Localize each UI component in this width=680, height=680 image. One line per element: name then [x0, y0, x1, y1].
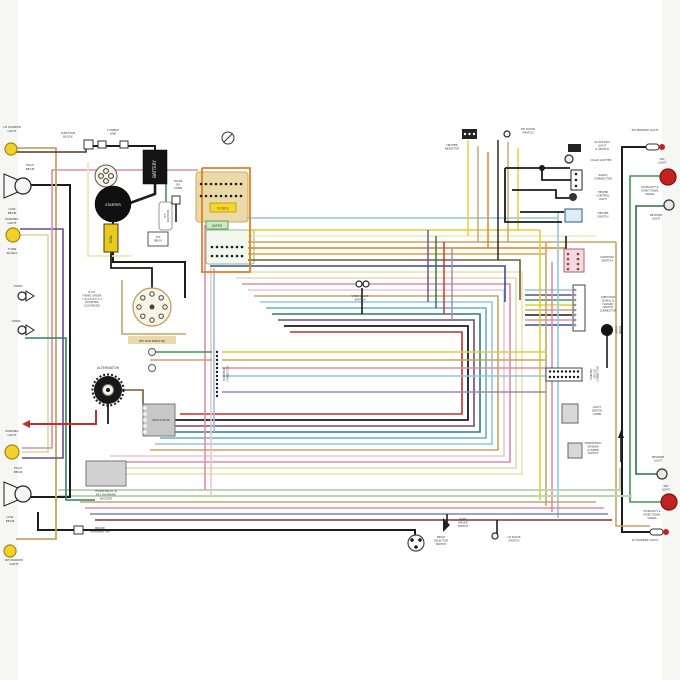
- printed-circuit-pins-1: [577, 370, 579, 372]
- wiper-fuse-row-1: [216, 246, 219, 249]
- stop-light-switch-pin-2: [363, 281, 369, 287]
- printed-circuit-label: PRINTEDCIRCUITCONNECTOR: [589, 366, 600, 382]
- bulkhead-connector-pins: [216, 359, 218, 361]
- wiper-fuse-row-1: [241, 246, 244, 249]
- wire-nest-purple: [170, 320, 474, 426]
- glove-box-light-symbol: [568, 144, 581, 152]
- wiper-fuse-row-1: [221, 246, 224, 249]
- parking-lamp-top-bulb: [6, 228, 20, 242]
- stoplight-bottom-label: STOPLIGHT &DIRECTIONALSIGNAL: [643, 509, 661, 520]
- rh-door-switch-symbol: [504, 131, 510, 137]
- fuse-row-1: [205, 183, 208, 186]
- horn-2-bell: [26, 325, 34, 335]
- fuse-row-1: [210, 183, 213, 186]
- firing-order-label: 8 CYLFIRING ORDER1-8-4-3-6-5-7-2(COUNTER…: [82, 290, 102, 308]
- fuse-row-2: [205, 195, 208, 198]
- wiper-fuse-row-2: [221, 255, 224, 258]
- oil-sender: [149, 365, 156, 372]
- turn-signal-top-label: TURNSIGNAL: [6, 247, 17, 255]
- printed-circuit-pins-2: [577, 376, 579, 378]
- bulkhead-connector-pins: [216, 395, 218, 397]
- wire-horn-teal: [25, 338, 95, 500]
- wiper-fuse-row-1: [231, 246, 234, 249]
- printed-circuit-pins-1: [569, 370, 571, 372]
- ignition-pins-1: [567, 258, 570, 261]
- beam-selector-label: BEAMSELECTORSWITCH: [434, 535, 448, 546]
- cigar-lighter-symbol: [565, 155, 573, 163]
- wire-top-orange: [248, 248, 565, 252]
- printed-circuit-pins-1: [573, 370, 575, 372]
- dome-light-symbol: [601, 324, 613, 336]
- fuse-row-1: [230, 183, 233, 186]
- fuse-row-1: [220, 183, 223, 186]
- hei-distributor-label: HEI DISTRIBUTOR: [139, 339, 165, 343]
- photo-edge-left: [0, 0, 18, 680]
- rh-marker-light-capsule: [646, 144, 659, 150]
- fuse-row-1: [200, 183, 203, 186]
- fuses-label: FUSES: [217, 207, 229, 211]
- printed-circuit-pins-2: [549, 376, 551, 378]
- lh-marker-light-capsule: [650, 529, 663, 535]
- wire-alt-regulator-brown: [121, 390, 143, 405]
- dome-light-label: DOMELIGHT: [615, 326, 622, 334]
- regulator-scallops: [143, 412, 147, 416]
- tail-light-top: [660, 169, 676, 185]
- printed-circuit-pins-2: [561, 376, 563, 378]
- bulkhead-connector-pins: [216, 363, 218, 365]
- low-beam-top-label: LOWBEAM: [8, 207, 17, 215]
- wiper-fuse-row-2: [216, 255, 219, 258]
- ignition-pins-1: [567, 253, 570, 256]
- radio-connector-pins: [575, 173, 578, 176]
- bulkhead-connector-pins: [216, 375, 218, 377]
- fuse-row-1: [240, 183, 243, 186]
- fuse-row-1: [235, 183, 238, 186]
- glove-box-label: GLOVE BOXLIGHT& SWITCH: [594, 140, 610, 151]
- horn-1-symbol: [18, 292, 26, 300]
- photo-edge-right: [662, 0, 680, 680]
- horn-2-symbol: [18, 326, 26, 334]
- headlamp-top-lens: [15, 178, 31, 194]
- heater-switch-symbol: [565, 209, 582, 222]
- wiper-fuse-row-2: [226, 255, 229, 258]
- horn-1-label: HORN: [14, 284, 23, 288]
- regulator-label: REGULATOR: [152, 418, 169, 422]
- wire-bottom-palegreen-1: [58, 468, 620, 490]
- lh-door-switch-symbol: [492, 533, 498, 539]
- heater-switch-label: HEATERSWITCH: [598, 211, 609, 219]
- fuse-row-2: [225, 195, 228, 198]
- printed-circuit-pins-1: [553, 370, 555, 372]
- wiper-switch-connector: [568, 443, 582, 458]
- wire-left-cream: [20, 235, 48, 452]
- ignition-pins-1: [567, 268, 570, 271]
- tail-light-bottom: [661, 494, 677, 510]
- rh-marker-lamp-bulb: [4, 545, 16, 557]
- wiper-fuse-row-2: [236, 255, 239, 258]
- heater-resistor-pins: [473, 133, 475, 135]
- reverse-light-bottom: [657, 469, 667, 479]
- beam-selector-pins: [410, 538, 414, 542]
- wire-left-tan: [16, 148, 56, 539]
- stop-light-switch-pin-1: [356, 281, 362, 287]
- ignition-pins-2: [577, 268, 580, 271]
- horn-relay-label: HORN RELAY &KEY WARNINGBUZZER: [95, 489, 117, 500]
- distributor-center: [150, 305, 155, 310]
- high-beam-top-label: HIGHBEAM: [26, 163, 35, 171]
- battery-label: BATTERY: [152, 160, 157, 178]
- antenna-arrowhead: [618, 430, 624, 438]
- horn-relay: [86, 461, 126, 486]
- fuse-row-2: [240, 195, 243, 198]
- wiper-fuse-row-2: [241, 255, 244, 258]
- alternator-label: ALTERNATOR: [97, 366, 120, 370]
- park-brake-label: PARKBRAKESWITCH: [458, 517, 469, 528]
- heater-resistor-pins: [468, 133, 470, 135]
- starter-label: STARTER: [105, 203, 121, 207]
- heater-control-light-symbol: [569, 193, 577, 201]
- printed-circuit-pins-2: [573, 376, 575, 378]
- lh-marker-bottom-label: LH MARKER LIGHT: [632, 538, 659, 542]
- fuse-row-2: [220, 195, 223, 198]
- brake-warning-label: BRAKEWARNING SW: [90, 526, 110, 534]
- regulator-scallops: [143, 430, 147, 434]
- wire-marker-brown: [16, 146, 86, 152]
- ignition-pins-1: [567, 263, 570, 266]
- printed-circuit-connector: [546, 368, 582, 381]
- alternator-red-arrowhead: [22, 420, 30, 428]
- printed-circuit-pins-1: [557, 370, 559, 372]
- rh-marker-light-label: RH MARKER LIGHT: [632, 128, 659, 132]
- rh-marker-light-lens: [659, 144, 665, 150]
- fusible-link-label: FUSIBLELINK: [107, 128, 119, 136]
- regulator-scallops: [143, 424, 147, 428]
- wire-heaterlight-black: [512, 190, 571, 198]
- wiper-fuse-row-2: [231, 255, 234, 258]
- headlamp-bottom-lens: [15, 486, 31, 502]
- beam-selector-pins: [418, 538, 422, 542]
- high-beam-bottom-label: HIGHBEAM: [14, 466, 23, 474]
- coil-label: COIL: [109, 235, 113, 243]
- printed-circuit-pins-2: [557, 376, 559, 378]
- direction-signal-pins: [574, 289, 577, 292]
- harness-junction-dot: [539, 165, 545, 171]
- heater-resistor-pins: [464, 133, 466, 135]
- fuse-row-2: [215, 195, 218, 198]
- junction-block: [84, 140, 93, 149]
- direction-signal-pins: [574, 309, 577, 312]
- fuse-row-2: [210, 195, 213, 198]
- heater-resistor-label: HEATERRESISTOR: [445, 143, 459, 151]
- radio-connector-pins: [575, 179, 578, 182]
- bulkhead-connector-pins: [216, 379, 218, 381]
- stop-light-switch-label: STOP LIGHTSWITCH: [351, 294, 368, 302]
- direction-signal-pins: [574, 294, 577, 297]
- fuse-row-1: [215, 183, 218, 186]
- beam-selector-pin-3: [414, 545, 418, 549]
- light-switch-connector: [562, 404, 578, 423]
- low-beam-bottom-label: LOWBEAM: [6, 515, 15, 523]
- reverse-light-top: [664, 200, 674, 210]
- junction-block-label: JUNCTIONBLOCK: [60, 131, 75, 139]
- fusible-link-terminal-2: [120, 141, 128, 148]
- printed-circuit-pins-2: [553, 376, 555, 378]
- wiper-label: WIPER: [212, 224, 223, 228]
- wiper-fuse-row-1: [211, 246, 214, 249]
- stoplight-top-label: STOPLIGHT &DIRECTIONALSIGNAL: [641, 185, 659, 196]
- bulkhead-connector-pins: [216, 351, 218, 353]
- lh-marker-light-lens: [663, 529, 669, 535]
- lh-door-switch-label: LH DOORSWITCH: [507, 535, 520, 543]
- direction-signal-label: DIRECTIONSIGNAL &HAZARDSWITCHCONNECTOR: [600, 295, 617, 313]
- horn-2-label: HORN: [12, 319, 21, 323]
- wire-nest-black: [175, 326, 468, 420]
- wiper-fuse-row-1: [226, 246, 229, 249]
- wire-rear-green-reverse: [636, 206, 664, 474]
- wiring-diagram-photo: BATTERYSTARTERCOILTCSSOLENOIDTCSRELAYHEI…: [0, 0, 680, 680]
- fuse-row-2: [200, 195, 203, 198]
- bulkhead-connector-pins: [216, 387, 218, 389]
- wire-nest-tan: [150, 296, 498, 450]
- regulator-scallops: [143, 418, 147, 422]
- bulkhead-connector-pins: [216, 355, 218, 357]
- bulkhead-connector-pins: [216, 367, 218, 369]
- fuse-row-2: [230, 195, 233, 198]
- ignition-pins-2: [577, 263, 580, 266]
- radio-connector-label: RADIOCONNECTOR: [594, 173, 612, 181]
- direction-signal-pins: [574, 324, 577, 327]
- wire-bottom-black-dimmer: [38, 512, 415, 538]
- windshield-wiper-switch-label: WINDSHIELDWASHER& WIPERSWITCH: [585, 441, 602, 455]
- alternator-shaft: [106, 388, 110, 392]
- printed-circuit-pins-2: [565, 376, 567, 378]
- regulator-scallops: [143, 406, 147, 410]
- reverse-light-top-label: REVERSELIGHT: [650, 213, 663, 221]
- bulkhead-connector-pins: [216, 383, 218, 385]
- ignition-pins-2: [577, 258, 580, 261]
- direction-signal-pins: [574, 299, 577, 302]
- fusible-link-terminal-1: [98, 141, 106, 148]
- bulkhead-connector-label: BULKHEADCONNECTOR: [222, 366, 229, 382]
- printed-circuit-pins-1: [565, 370, 567, 372]
- wire-coil-distributor: [111, 252, 152, 290]
- bulkhead-connector-pins: [216, 391, 218, 393]
- wire-rear-green-tail: [630, 176, 663, 502]
- lh-marker-lamp-bulb: [5, 143, 17, 155]
- fuse-row-1: [225, 183, 228, 186]
- wire-radio-black-2: [542, 168, 571, 180]
- bulkhead-connector-pins: [216, 371, 218, 373]
- fuse-row-2: [235, 195, 238, 198]
- temp-sender: [149, 349, 156, 356]
- radio-connector-pins: [575, 185, 578, 188]
- trans-six-conn-label: TRANSSIXCONN: [173, 179, 183, 190]
- ignition-pins-2: [577, 253, 580, 256]
- direction-signal-pins: [574, 304, 577, 307]
- direction-signal-pins: [574, 314, 577, 317]
- cigar-lighter-label: CIGAR LIGHTER: [591, 158, 612, 162]
- horn-1-bell: [26, 291, 34, 301]
- trans-six-connector: [172, 196, 180, 204]
- wiper-fuse-row-2: [211, 255, 214, 258]
- direction-signal-pins: [574, 319, 577, 322]
- ignition-switch-label: IGNITIONSWITCH: [600, 255, 613, 263]
- wire-glovebox-black: [505, 168, 562, 222]
- heater-control-light-label: HEATERCONTROLLIGHT: [596, 190, 610, 201]
- wiring-diagram-svg: BATTERYSTARTERCOILTCSSOLENOIDTCSRELAYHEI…: [0, 0, 680, 680]
- brake-warning-connector: [74, 526, 83, 534]
- rh-door-switch-label: RH DOORSWITCH: [521, 127, 535, 135]
- wiper-fuse-row-1: [236, 246, 239, 249]
- parking-lamp-bottom-bulb: [5, 445, 19, 459]
- light-switch-conn-label: LIGHTSWITCHCONN: [592, 405, 603, 416]
- printed-circuit-pins-1: [549, 370, 551, 372]
- wire-nest-cyan: [160, 308, 486, 438]
- printed-circuit-pins-2: [569, 376, 571, 378]
- printed-circuit-pins-1: [561, 370, 563, 372]
- wire-battery-starter: [130, 184, 155, 203]
